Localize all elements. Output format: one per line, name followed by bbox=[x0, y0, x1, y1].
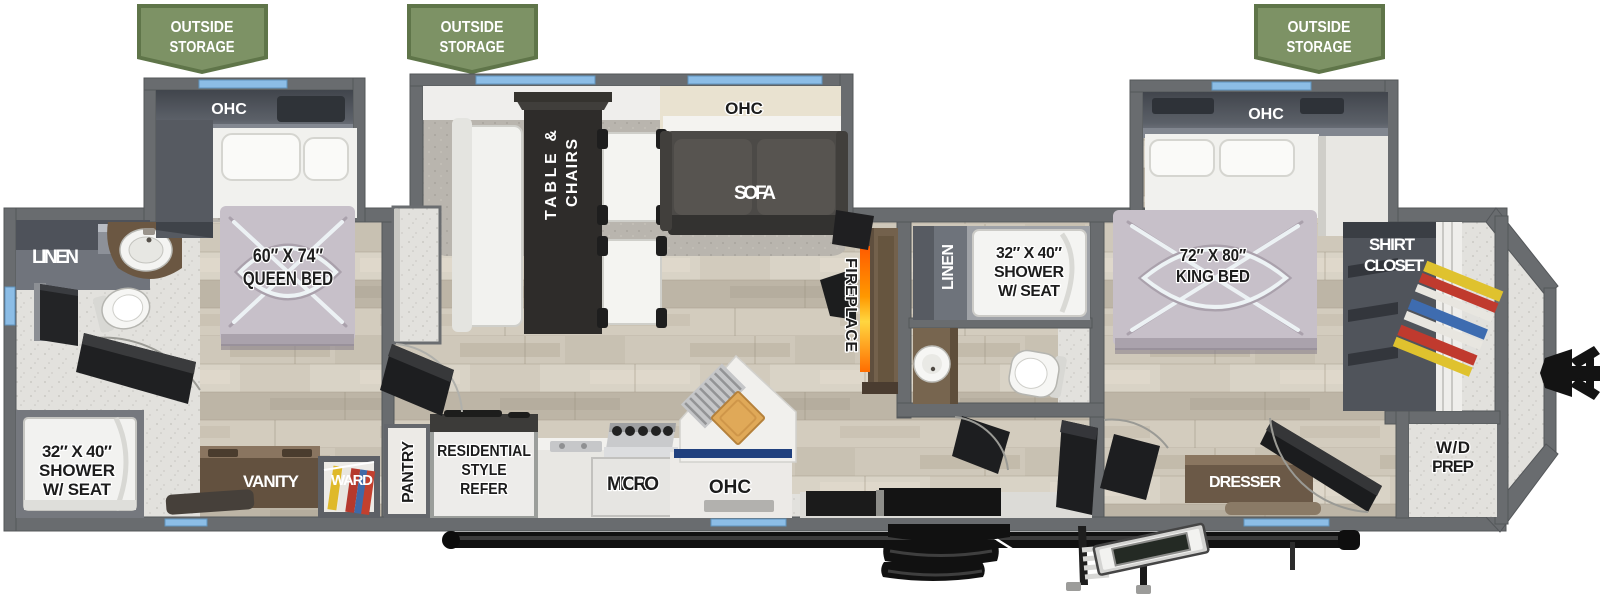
svg-text:SOFA: SOFA bbox=[734, 183, 776, 204]
svg-text:SHOWER: SHOWER bbox=[39, 461, 115, 480]
svg-text:PREP: PREP bbox=[1432, 457, 1474, 476]
svg-text:STYLE: STYLE bbox=[461, 461, 506, 479]
svg-text:MICRO: MICRO bbox=[607, 474, 659, 495]
svg-text:CHAIRS: CHAIRS bbox=[564, 139, 581, 207]
svg-text:32″ X 40″: 32″ X 40″ bbox=[42, 442, 112, 461]
svg-text:VANITY: VANITY bbox=[243, 472, 300, 491]
svg-text:32″ X 40″: 32″ X 40″ bbox=[996, 245, 1062, 262]
svg-text:DRESSER: DRESSER bbox=[1209, 474, 1281, 491]
svg-text:WARD: WARD bbox=[331, 472, 373, 489]
svg-text:SHIRT: SHIRT bbox=[1369, 235, 1416, 254]
svg-text:STORAGE: STORAGE bbox=[440, 39, 505, 56]
svg-text:PANTRY: PANTRY bbox=[400, 441, 417, 503]
svg-text:OHC: OHC bbox=[725, 99, 763, 118]
svg-text:CLOSET: CLOSET bbox=[1364, 256, 1425, 275]
svg-text:OUTSIDE: OUTSIDE bbox=[441, 19, 504, 36]
svg-text:60″ X 74″: 60″ X 74″ bbox=[253, 245, 324, 267]
svg-text:SHOWER: SHOWER bbox=[994, 264, 1064, 281]
svg-text:KING BED: KING BED bbox=[1176, 266, 1250, 287]
svg-text:OHC: OHC bbox=[211, 101, 247, 118]
svg-text:OHC: OHC bbox=[709, 477, 752, 498]
svg-text:QUEEN BED: QUEEN BED bbox=[243, 267, 333, 289]
svg-text:FIREPLACE: FIREPLACE bbox=[842, 258, 859, 352]
svg-text:LINEN: LINEN bbox=[940, 244, 957, 290]
svg-text:W/D: W/D bbox=[1436, 438, 1470, 457]
svg-text:LINEN: LINEN bbox=[32, 247, 79, 268]
svg-text:W/ SEAT: W/ SEAT bbox=[998, 283, 1060, 300]
svg-text:W/ SEAT: W/ SEAT bbox=[43, 480, 112, 499]
svg-text:72″ X 80″: 72″ X 80″ bbox=[1180, 245, 1247, 266]
svg-text:OUTSIDE: OUTSIDE bbox=[1288, 19, 1351, 36]
svg-text:OUTSIDE: OUTSIDE bbox=[171, 19, 234, 36]
svg-text:OHC: OHC bbox=[1248, 106, 1284, 123]
svg-text:RESIDENTIAL: RESIDENTIAL bbox=[437, 442, 531, 460]
svg-text:STORAGE: STORAGE bbox=[170, 39, 235, 56]
svg-text:REFER: REFER bbox=[460, 480, 508, 498]
svg-text:STORAGE: STORAGE bbox=[1287, 39, 1352, 56]
